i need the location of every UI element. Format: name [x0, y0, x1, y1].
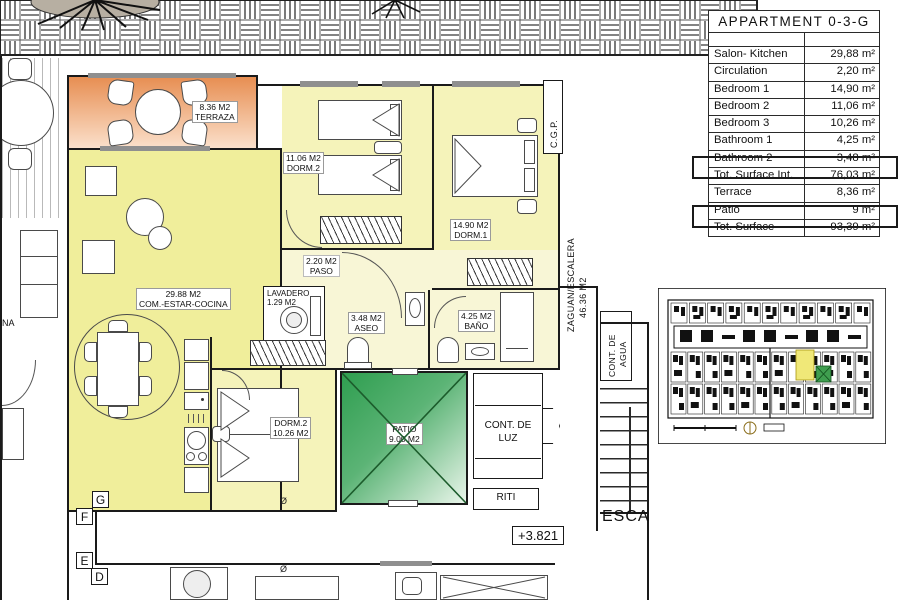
wall	[67, 510, 337, 512]
coffee-table-small	[148, 226, 172, 250]
neighbour-cabinet	[255, 576, 339, 600]
window	[100, 146, 210, 151]
cgp-label: C.G.P.	[549, 120, 559, 148]
dining-chair	[84, 342, 97, 362]
row-label: Tot. Surface Int.	[709, 168, 804, 184]
key-plan	[658, 288, 886, 444]
wall	[67, 75, 69, 512]
table-column-divider	[804, 33, 805, 236]
label-bedroom3: DORM.2 10.26 M2	[270, 417, 311, 439]
living-armchair	[82, 240, 115, 274]
label-laundry: LAVADERO 1.29 M2	[265, 289, 317, 307]
bath-wardrobe	[467, 258, 533, 286]
diameter-symbol: Ø	[280, 564, 287, 574]
kitchen-cabinet	[184, 467, 209, 493]
toilet-name: ASEO	[351, 323, 382, 333]
hall-name: PASO	[306, 266, 337, 276]
wall	[432, 288, 560, 290]
window	[380, 561, 432, 566]
row-label: Bathroom 2	[709, 151, 804, 167]
area-table-row: Bathroom 14,25 m²	[709, 132, 879, 149]
row-label: Bathroom 1	[709, 133, 804, 149]
area-table-row: Bedroom 211,06 m²	[709, 98, 879, 115]
neighbour-wardrobe	[440, 575, 548, 600]
dining-table	[97, 332, 139, 406]
dining-chair	[108, 320, 128, 332]
patio-area: 9.00 M2	[389, 434, 420, 444]
counter-knob	[201, 398, 204, 401]
wall	[432, 86, 434, 250]
row-value: 29,88 m²	[804, 47, 879, 63]
unit-letter-f: F	[76, 508, 93, 525]
toilet-cistern	[344, 362, 372, 369]
stair-divider	[629, 407, 631, 514]
row-value: 14,90 m²	[804, 82, 879, 98]
label-bedroom2: 11.06 M2 DORM.2	[283, 152, 324, 174]
kitchen-counter	[184, 392, 209, 410]
neighbour-sofa	[20, 230, 58, 318]
window	[300, 81, 358, 87]
bedroom2-area: 11.06 M2	[286, 153, 321, 163]
row-label: Salon- Kitchen	[709, 47, 804, 63]
terrace-area: 8.36 M2	[195, 102, 235, 112]
stair-label: ESCA	[602, 508, 650, 526]
nightstand	[517, 118, 537, 133]
dining-chair	[139, 376, 152, 396]
kitchen-vent	[188, 414, 206, 423]
area-table-row: Bedroom 114,90 m²	[709, 81, 879, 98]
area-table-row: Terrace8,36 m²	[709, 184, 879, 201]
sink-bowl	[187, 431, 206, 450]
diameter-symbol: Ø	[280, 496, 287, 506]
wall	[67, 512, 69, 600]
kitchen-fridge	[184, 339, 209, 361]
wall	[335, 370, 337, 510]
hob-burner	[198, 452, 207, 461]
pillow	[390, 104, 400, 136]
row-label: Bedroom 3	[709, 116, 804, 132]
row-value: 93,39 m²	[804, 220, 879, 236]
bath-name: BAÑO	[461, 321, 492, 331]
hallway-area-label: 46.36 M2	[578, 277, 588, 318]
paving-pattern	[0, 0, 758, 57]
wardrobe	[320, 216, 402, 244]
area-table-row: Circulation2,20 m²	[709, 63, 879, 80]
water-meter-label-2: AGUA	[618, 341, 628, 367]
electric-line1: CONT. DE	[475, 420, 541, 433]
patio-name: PATIO	[389, 424, 420, 434]
area-table-title: APPARTMENT 0-3-G	[709, 11, 879, 33]
label-living: 29.88 M2 COM.-ESTAR-COCINA	[136, 288, 231, 310]
neighbour-chair	[8, 148, 32, 170]
bedroom1-name: DORM.1	[453, 230, 488, 240]
electric-line2: LUZ	[475, 433, 541, 446]
floorplan-sheet: NA	[0, 0, 899, 600]
wall	[280, 248, 434, 250]
nightstand	[212, 426, 230, 442]
wall	[95, 563, 555, 565]
hob-burner	[186, 452, 195, 461]
terrace-table	[135, 89, 181, 135]
basin-bowl	[471, 347, 489, 356]
dining-chair	[84, 376, 97, 396]
row-value: 76,03 m²	[804, 168, 879, 184]
row-label: Patio	[709, 203, 804, 219]
wall	[647, 322, 649, 600]
wall	[600, 322, 647, 324]
terrace-name: TERRAZA	[195, 112, 235, 122]
meter-door-flag	[543, 408, 560, 444]
neighbour-washer-icon	[183, 570, 211, 598]
label-terrace: 8.36 M2 TERRAZA	[192, 101, 238, 123]
wall	[256, 75, 258, 150]
hallway-label: ZAGUAN/ESCALERA	[566, 238, 576, 332]
area-table-row: Salon- Kitchen29,88 m²	[709, 46, 879, 63]
row-label: Circulation	[709, 64, 804, 80]
neighbour-wall	[0, 56, 2, 600]
row-value: 8,36 m²	[804, 185, 879, 201]
row-label: Tot. Surface	[709, 220, 804, 236]
terrace-chair	[106, 78, 134, 106]
unit-letter-g: G	[92, 491, 109, 508]
area-table-row: Tot. Surface Int.76,03 m²	[709, 167, 879, 184]
area-table-row: Tot. Surface93,39 m²	[709, 219, 879, 236]
row-label: Bedroom 1	[709, 82, 804, 98]
row-label: Bedroom 2	[709, 99, 804, 115]
bedroom2-name: DORM.2	[286, 163, 321, 173]
dining-chair	[108, 406, 128, 418]
row-value: 2,20 m²	[804, 64, 879, 80]
living-area: 29.88 M2	[139, 289, 228, 299]
toilet-icon	[347, 337, 369, 365]
table-spacer-row	[709, 33, 879, 46]
basin-bowl	[409, 298, 421, 318]
wall	[428, 290, 430, 370]
pillow	[524, 168, 535, 192]
row-value: 10,26 m²	[804, 116, 879, 132]
hall-closet	[250, 340, 326, 366]
label-bath: 4.25 M2 BAÑO	[458, 310, 495, 332]
bath-area: 4.25 M2	[461, 311, 492, 321]
label-toilet: 3.48 M2 ASEO	[348, 312, 385, 334]
area-table-row: Patio9 m²	[709, 202, 879, 219]
living-cabinet	[85, 166, 117, 196]
laundry-area: 1.29 M2	[267, 298, 317, 307]
label-patio: PATIO 9.00 M2	[386, 423, 423, 445]
pillow	[524, 140, 535, 164]
wall	[596, 286, 598, 531]
area-table-body: Salon- Kitchen29,88 m²Circulation2,20 m²…	[709, 33, 879, 236]
washing-machine-drum	[286, 312, 302, 328]
row-value: 4,25 m²	[804, 133, 879, 149]
patio-vent	[392, 368, 418, 375]
box-line	[475, 405, 541, 406]
row-value: 3,48 m²	[804, 151, 879, 167]
shower	[500, 292, 534, 362]
bedroom3-name: DORM.2	[273, 418, 308, 428]
label-riti: RITI	[473, 492, 539, 505]
box-line	[475, 458, 541, 459]
toilet-area: 3.48 M2	[351, 313, 382, 323]
nightstand	[517, 199, 537, 214]
shower-line	[506, 348, 528, 349]
window	[382, 81, 420, 87]
row-label: Terrace	[709, 185, 804, 201]
level-mark: +3.821	[512, 526, 564, 545]
neighbour-sink	[402, 577, 422, 595]
bedroom1-area: 14.90 M2	[453, 220, 488, 230]
row-value: 9 m²	[804, 203, 879, 219]
nightstand	[374, 141, 402, 154]
wall	[210, 368, 560, 370]
living-name: COM.-ESTAR-COCINA	[139, 299, 228, 309]
label-bedroom1: 14.90 M2 DORM.1	[450, 219, 491, 241]
row-value: 11,06 m²	[804, 99, 879, 115]
label-hall: 2.20 M2 PASO	[303, 255, 340, 277]
neighbour-door-arc	[2, 360, 36, 406]
patio-vent	[388, 500, 418, 507]
label-electric: CONT. DE LUZ	[475, 420, 541, 445]
wall	[210, 337, 212, 510]
wall	[95, 512, 97, 565]
staircase	[600, 388, 647, 514]
unit-letter-d: D	[91, 568, 108, 585]
pillow	[390, 159, 400, 191]
terrace-chair	[106, 118, 134, 146]
bedroom3-area: 10.26 M2	[273, 428, 308, 438]
dining-chair	[139, 342, 152, 362]
window	[88, 73, 236, 78]
unit-letter-e: E	[76, 552, 93, 569]
sofa-line	[20, 284, 58, 285]
window	[452, 81, 520, 87]
sofa-line	[20, 256, 58, 257]
neighbour-chair	[8, 58, 32, 80]
hall-area: 2.20 M2	[306, 256, 337, 266]
kitchen-cabinet	[184, 362, 209, 390]
area-table-row: Bedroom 310,26 m²	[709, 115, 879, 132]
area-table: APPARTMENT 0-3-G Salon- Kitchen29,88 m²C…	[708, 10, 880, 237]
toilet-icon	[437, 337, 459, 363]
area-table-row: Bathroom 23,48 m²	[709, 150, 879, 167]
water-meter-label-1: CONT. DE	[607, 334, 617, 377]
edge-text: NA	[2, 318, 15, 329]
neighbour-armchair	[2, 408, 24, 460]
laundry-name: LAVADERO	[267, 289, 317, 298]
